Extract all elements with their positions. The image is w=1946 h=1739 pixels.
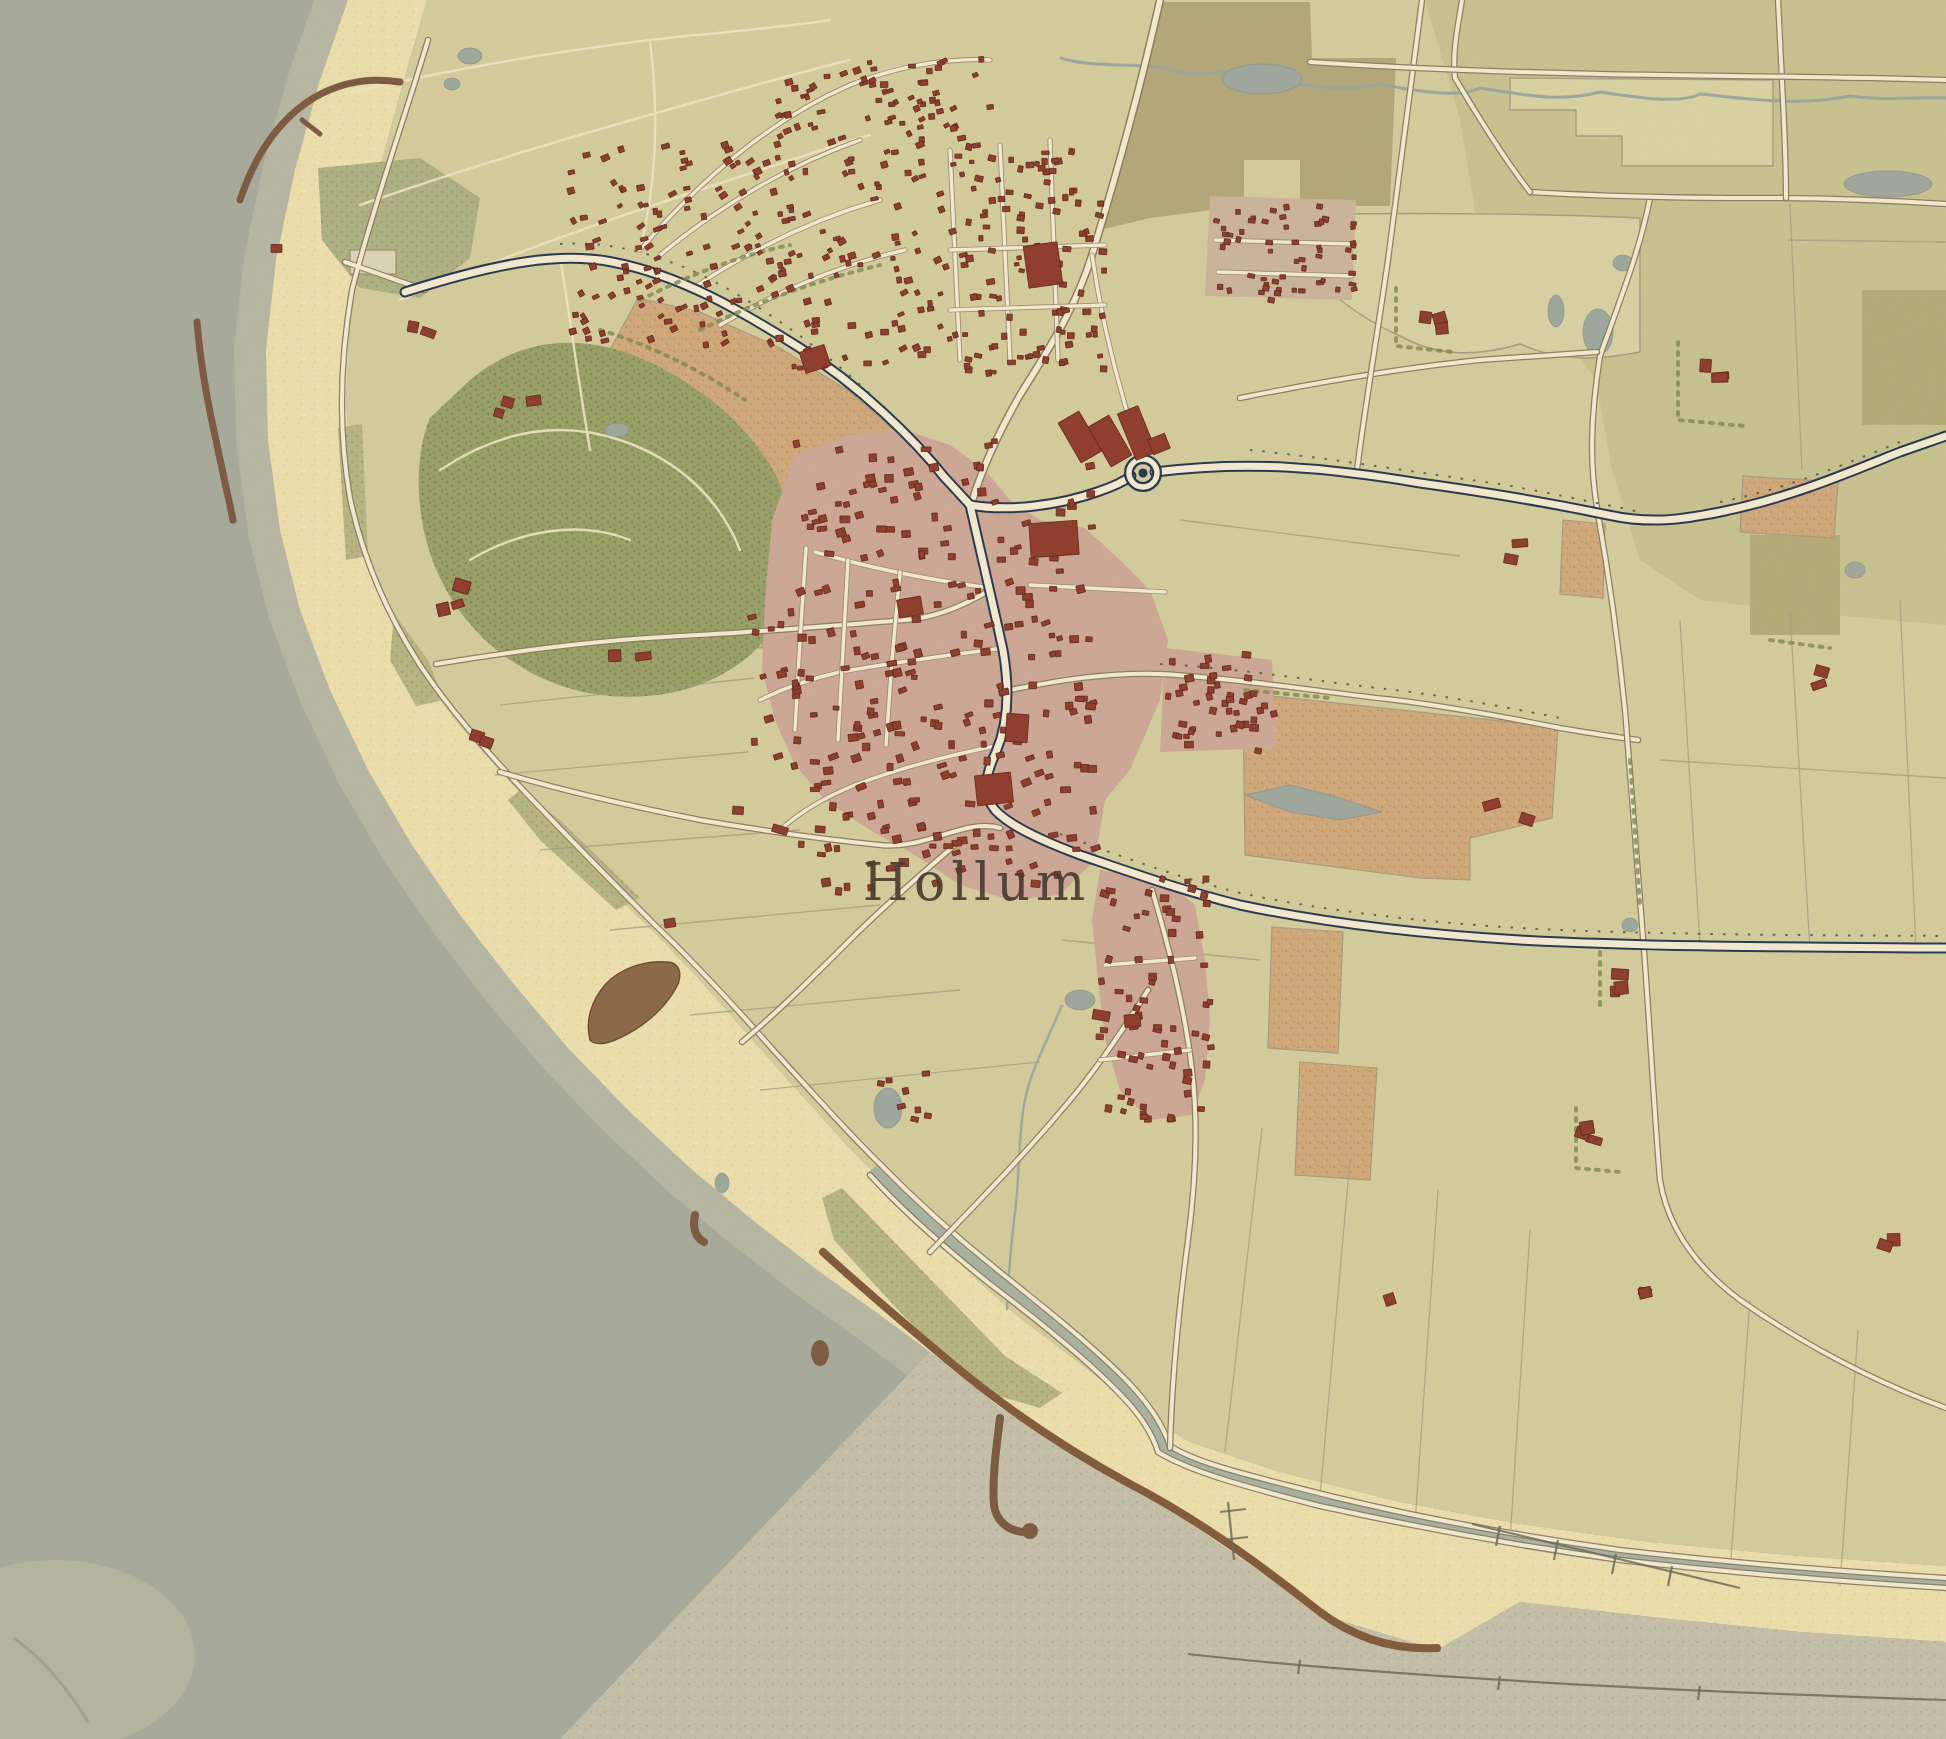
map-canvas[interactable]: Hollum [0, 0, 1946, 1739]
paper-grain [0, 0, 1946, 1739]
